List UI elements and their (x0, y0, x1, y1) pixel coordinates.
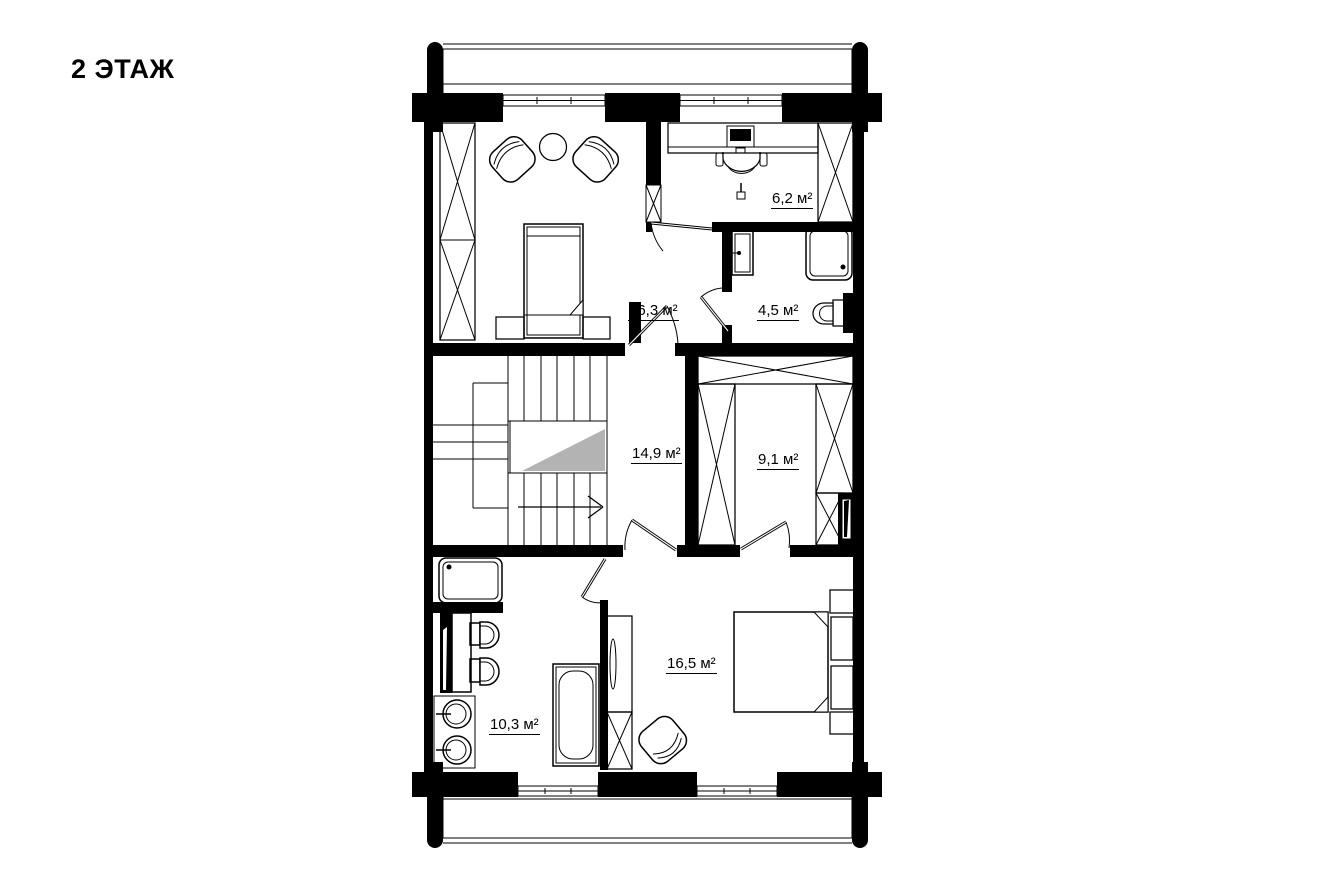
single-bed-icon (524, 224, 583, 338)
shower-tray-icon (806, 227, 852, 280)
nightstand-icon (496, 317, 524, 339)
room-area-label-bathroom-small: 4,5 м² (757, 303, 799, 321)
wall-hung-toilet-icon (470, 622, 499, 648)
room-area-label-bathroom-large: 10,3 м² (489, 717, 540, 735)
toilet-icon (813, 300, 844, 326)
office-chair-icon (716, 152, 767, 199)
door-wardrobe-room (741, 522, 790, 549)
pillow-icon (831, 617, 853, 660)
room-bathroom-large (433, 558, 599, 768)
nightstand-icon (830, 590, 855, 613)
wall-hung-bidet-icon (470, 658, 499, 685)
door-hall-to-bedroom (625, 520, 676, 550)
tv-cabinet-icon (607, 616, 632, 712)
wardrobe-wide-icon (698, 356, 853, 384)
pillow-icon (831, 666, 853, 709)
monitor-icon (727, 126, 754, 153)
duct-shaft-icon (838, 493, 855, 545)
roof-outline-top (432, 44, 861, 93)
room-living-bedroom (440, 123, 623, 340)
coffee-table-icon (540, 134, 567, 161)
room-area-label-hall: 14,9 м² (631, 446, 682, 464)
door-bathroom-small (701, 288, 728, 331)
bathtub-icon (553, 664, 599, 766)
wardrobe-icon (607, 712, 632, 769)
armchair-icon (485, 132, 539, 186)
nightstand-icon (583, 317, 610, 339)
wardrobe-tall-icon (440, 123, 475, 340)
installation-wall (440, 613, 471, 693)
wardrobe-icon (816, 384, 853, 493)
door-bathroom-large (582, 559, 605, 603)
room-area-label-office: 6,2 м² (771, 191, 813, 209)
window-top-left (503, 95, 605, 106)
nightstand-icon (830, 712, 855, 734)
wardrobe-icon (818, 123, 853, 222)
window-bottom-left (518, 786, 598, 796)
armchair-icon (634, 712, 690, 768)
room-area-label-bedroom: 16,5 м² (666, 656, 717, 674)
armchair-icon (568, 132, 622, 186)
sink-icon (732, 231, 753, 275)
stair-direction-marker (522, 429, 605, 471)
staircase (433, 356, 607, 545)
washer-dryer-icons (434, 696, 475, 768)
window-top-right (680, 95, 782, 106)
room-area-label-wardrobe: 9,1 м² (757, 452, 799, 470)
room-bedroom (607, 590, 855, 769)
double-bed-icon (734, 612, 853, 712)
window-bottom-right (697, 786, 777, 796)
door-office (651, 223, 712, 251)
room-office (668, 123, 853, 222)
floor-plan-page: 2 ЭТАЖ (0, 0, 1338, 892)
wardrobe-icon (698, 384, 735, 545)
room-area-label-living: 16,3 м² (628, 303, 679, 321)
roof-outline-bottom (432, 797, 861, 843)
shower-tray-icon (439, 558, 502, 603)
